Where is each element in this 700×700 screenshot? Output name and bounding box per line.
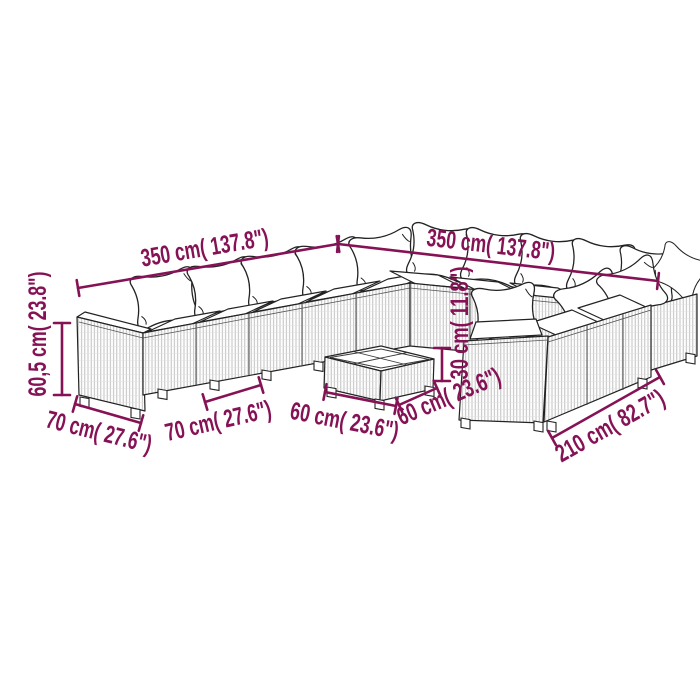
dim-sofa-height: 60,5 cm( 23.8")	[24, 272, 70, 397]
dim-sofa-height-label: 60,5 cm( 23.8")	[24, 272, 52, 397]
seat-cushion	[470, 319, 542, 339]
dim-seat-module-width-label: 70 cm( 27.6")	[162, 395, 274, 447]
foot	[686, 353, 695, 364]
lounge-set-drawing: 350 cm( 137.8") 350 cm( 137.8") 60,5 cm(…	[0, 0, 700, 700]
armrest-side-panel	[77, 317, 145, 411]
product-dimension-diagram: 350 cm( 137.8") 350 cm( 137.8") 60,5 cm(…	[0, 0, 700, 700]
dim-table-height-label: 30 cm( 11.8")	[446, 267, 474, 380]
